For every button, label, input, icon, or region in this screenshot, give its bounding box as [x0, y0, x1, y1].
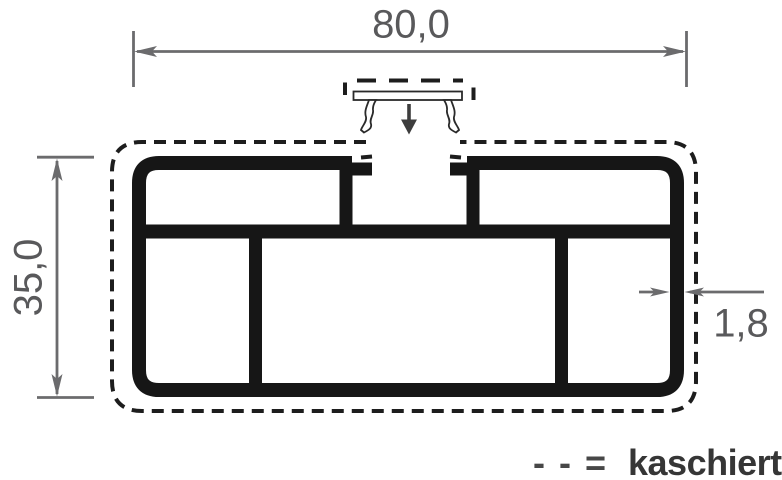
width-dimension: 80,0: [134, 3, 687, 88]
legend-dash-symbol: - - =: [533, 441, 608, 480]
cover-clip-leg-right: [444, 100, 459, 133]
thickness-dimension-label: 1,8: [713, 302, 769, 346]
foil-end-tick-left: [361, 157, 372, 158]
insertion-arrow-head: [401, 120, 417, 135]
insertion-arrow-down-icon: [401, 104, 417, 135]
cross-section-drawing: 80,0 35,0 1,8: [0, 0, 782, 480]
profile-outer-wall: [139, 163, 677, 390]
height-dimension: 35,0: [7, 157, 95, 397]
profile-drawing-canvas: 80,0 35,0 1,8 - - = kaschiert: [0, 0, 782, 480]
legend-label: kaschiert: [628, 441, 782, 480]
profile-body: [139, 157, 677, 391]
height-dimension-label: 35,0: [7, 239, 51, 317]
width-dimension-label: 80,0: [372, 3, 450, 47]
wall-thickness-dimension: 1,8: [639, 288, 769, 346]
cover-clip-bar: [354, 92, 463, 101]
cover-clip-leg-left: [361, 100, 376, 133]
legend: - - = kaschiert: [533, 441, 782, 480]
laminated-cover-dashed-outline: [112, 142, 696, 411]
foil-end-tick-right: [450, 157, 461, 158]
